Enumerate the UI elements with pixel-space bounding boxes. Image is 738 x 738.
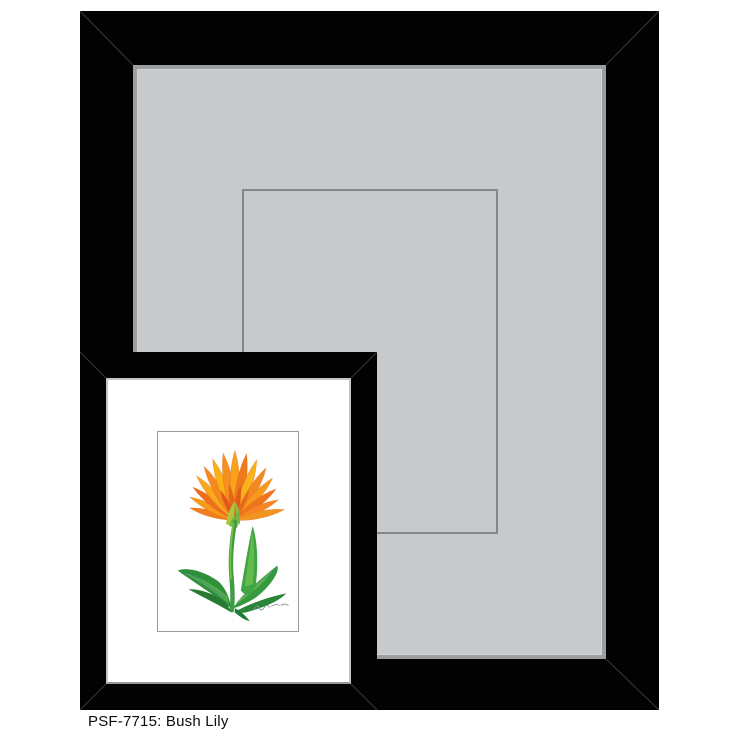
product-image: PSF-7715: Bush Lily bbox=[0, 0, 738, 738]
caption: PSF-7715: Bush Lily bbox=[88, 713, 229, 731]
bush-lily-artwork bbox=[157, 431, 299, 632]
caption-text: PSF-7715: Bush Lily bbox=[88, 713, 229, 730]
bush-lily-illustration bbox=[158, 432, 298, 631]
flower-stem bbox=[230, 522, 235, 610]
small-frame-mat bbox=[106, 378, 351, 684]
small-frame-preview bbox=[80, 352, 377, 710]
